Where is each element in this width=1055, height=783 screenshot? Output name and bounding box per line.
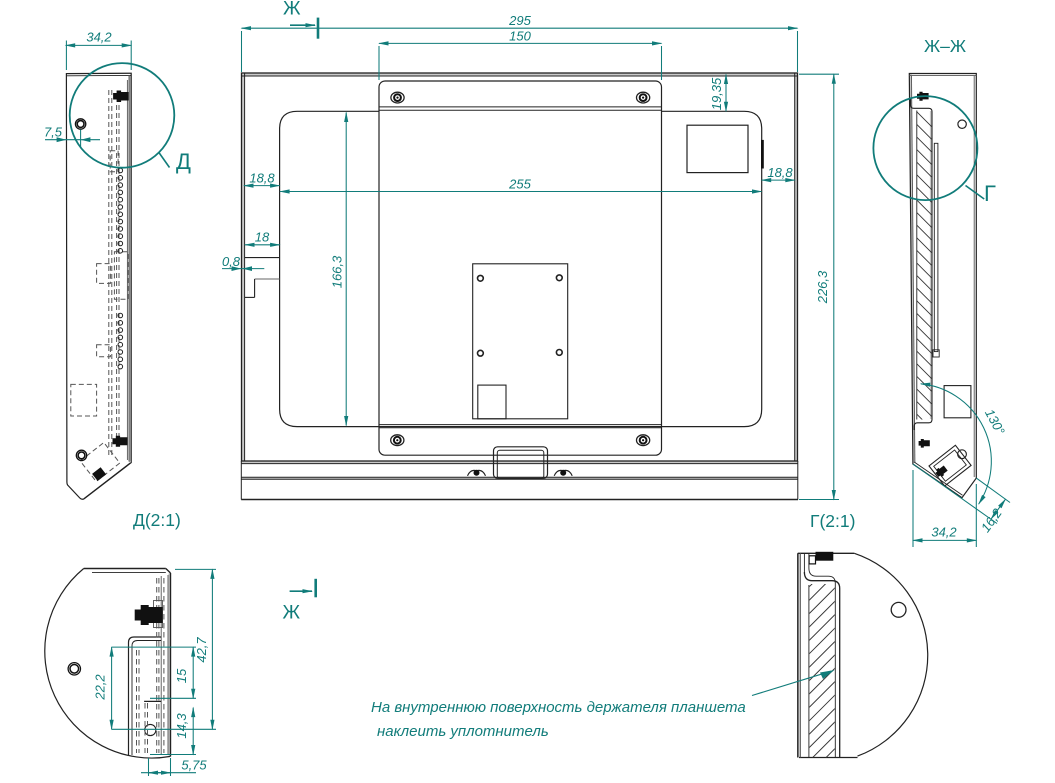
- svg-text:18,8: 18,8: [249, 171, 275, 186]
- svg-text:Ж: Ж: [283, 603, 301, 624]
- svg-text:7,5: 7,5: [44, 125, 63, 140]
- svg-text:5,75: 5,75: [181, 758, 207, 773]
- svg-text:Ж–Ж: Ж–Ж: [924, 36, 966, 56]
- svg-text:Г: Г: [984, 181, 996, 206]
- svg-text:226,3: 226,3: [815, 270, 830, 304]
- svg-text:0,8: 0,8: [222, 254, 241, 269]
- svg-text:Г(2:1): Г(2:1): [810, 511, 855, 531]
- svg-text:15: 15: [174, 668, 189, 683]
- svg-text:42,7: 42,7: [194, 637, 209, 663]
- svg-text:255: 255: [508, 177, 531, 192]
- svg-text:16,2: 16,2: [978, 505, 1005, 535]
- svg-text:14,3: 14,3: [174, 713, 189, 739]
- svg-text:34,2: 34,2: [931, 525, 957, 540]
- svg-text:18,8: 18,8: [767, 165, 793, 180]
- svg-text:Д: Д: [176, 149, 191, 174]
- svg-text:22,2: 22,2: [93, 674, 108, 701]
- svg-text:150: 150: [509, 28, 531, 43]
- svg-text:34,2: 34,2: [86, 30, 112, 45]
- svg-text:На внутреннюю поверхность держ: На внутреннюю поверхность держателя план…: [371, 699, 746, 716]
- svg-text:18: 18: [255, 230, 270, 245]
- svg-text:295: 295: [508, 13, 531, 28]
- svg-text:19,35: 19,35: [709, 77, 724, 110]
- svg-text:166,3: 166,3: [330, 255, 345, 288]
- svg-text:Д(2:1): Д(2:1): [133, 510, 181, 530]
- svg-text:Ж: Ж: [283, 0, 301, 20]
- svg-text:наклеить уплотнитель: наклеить уплотнитель: [377, 723, 549, 740]
